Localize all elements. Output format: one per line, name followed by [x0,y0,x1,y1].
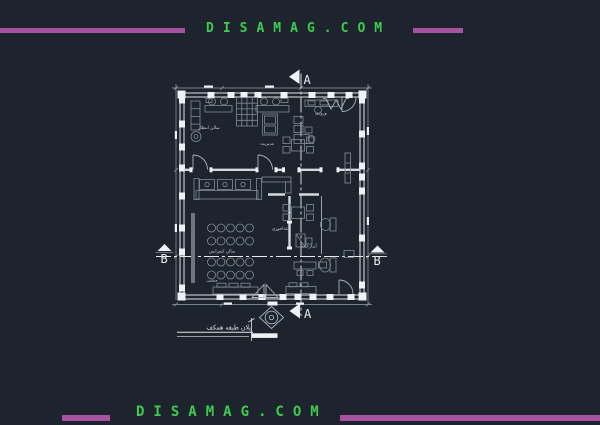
bookshelf-grid [237,98,258,127]
plan-caption: پلان طبقه همکف [206,325,251,332]
section-marker-a-bottom: A [290,304,313,322]
wardrobe [263,114,278,135]
bottom-left-purple-bar [62,415,110,421]
scale-bar [252,333,278,338]
site-banner-bottom: DISAMAG.COM [136,404,328,420]
wc-fixtures [320,218,355,272]
desks-bottom-right [294,262,327,276]
sofa-set [194,179,262,200]
dining-set-bottom [283,205,314,221]
section-arrow-icon [158,244,172,251]
bottom-right-purple-bar [340,415,600,421]
room-label-secretary: منشی [206,279,217,284]
dimension-ticks [174,86,370,307]
section-letter: A [304,73,312,87]
screenshot-root: { "page": {"background": "#1e242d"}, "ba… [0,0,600,425]
room-label-dining: غذاخوری [272,227,289,232]
wall-shelf-and-plant [191,101,201,142]
section-arrow-icon [371,246,385,253]
section-flag-icon [290,304,301,319]
plant-icon [191,132,201,142]
room-label-management: مدیریت [260,142,274,147]
north-symbol [260,302,284,329]
section-letter: B [374,254,381,268]
room-label-entrance: ورودی [315,112,327,117]
section-letter: A [304,307,312,321]
bench-left [213,283,258,294]
section-marker-a-top: A [289,70,312,88]
north-diamond-icon [260,307,284,329]
section-flag-icon [289,70,300,85]
room-label-pantry: آبدارخانه [301,244,317,250]
section-marker-b-left: B [156,244,174,266]
section-letter: B [161,252,168,266]
entrance-room-furniture [294,99,349,144]
classroom-partition-wall [191,213,195,283]
title-block: پلان طبقه همکف [177,318,278,341]
reception-desk [262,177,291,193]
room-label-conference: سالن کنفرانس [209,249,236,255]
room-label-waiting-hall: سالن انتظار [197,126,220,131]
right-wall-cabinet [345,153,351,183]
floor-plan-canvas: سالن انتظار مدیریت ورودی سالن کنفرانس غذ… [0,0,600,425]
